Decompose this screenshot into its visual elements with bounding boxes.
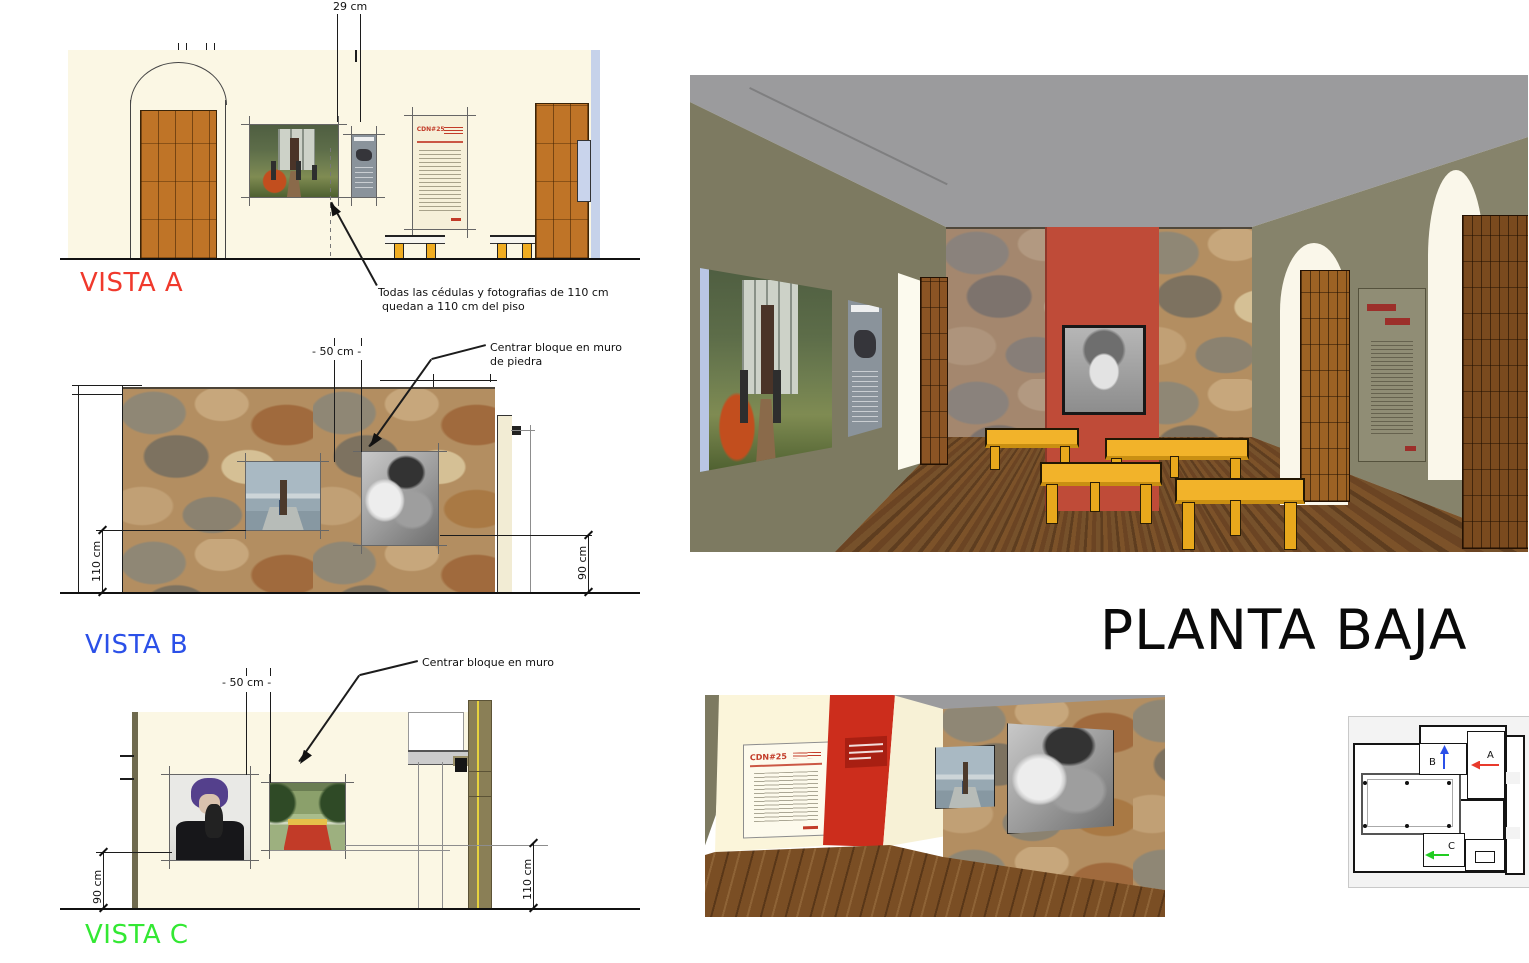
dimension-line: [361, 360, 362, 452]
plan-column-dot: [1447, 824, 1451, 828]
dimension-line: [337, 14, 338, 122]
plaque-text-line: [849, 757, 871, 760]
vista-c-dim-left: 90 cm: [91, 857, 104, 904]
guide-tick: [186, 43, 187, 50]
cdn-poster-title: CDN#25: [417, 126, 445, 133]
bench-table: [985, 428, 1079, 448]
plan-column-dot: [1405, 824, 1409, 828]
garden-photo: [250, 125, 338, 197]
jamb-seam: [469, 771, 491, 772]
dimension-line: [440, 535, 592, 536]
plan-door-gap: [1506, 827, 1520, 839]
guide-line: [418, 762, 419, 908]
plan-column-dot: [1363, 781, 1367, 785]
exhibit-title-panel: [1358, 288, 1426, 462]
bench-leg: [522, 243, 532, 259]
panel-text-lines: [355, 167, 373, 192]
photo-boat-rim: [288, 819, 327, 824]
lintel-line: [380, 380, 497, 381]
wall-line: [72, 385, 142, 386]
photo-figure: [740, 370, 748, 423]
bench-leg: [426, 243, 436, 259]
plan-column-dot: [1447, 781, 1451, 785]
guide-line: [270, 850, 450, 851]
wall-opening: [408, 712, 464, 752]
bench-leg: [1230, 500, 1241, 536]
door-jamb-column: [468, 700, 492, 910]
panel-title-line: [851, 305, 878, 312]
poster-subtitle-line: [417, 141, 463, 143]
guide-line: [345, 845, 548, 846]
quote-plaque: [845, 736, 887, 768]
plaque-text-line: [849, 743, 883, 747]
wall-line: [72, 394, 124, 395]
vista-c-note-line1: Centrar bloque en muro: [422, 656, 554, 669]
vista-b-elevation: - 50 cm - 110 cm 90 cm Centrar bloque en…: [60, 330, 645, 665]
pier-photo: [246, 462, 320, 530]
dimension-line: [96, 530, 246, 531]
plan-hall-inner: [1367, 779, 1453, 827]
vista-a-note-line1: Todas las cédulas y fotografias de 110 c…: [378, 286, 609, 299]
bench-leg: [394, 243, 404, 259]
jamb-seam: [469, 796, 491, 797]
poster-title-lines: [444, 127, 462, 134]
vista-b-note-line2: de piedra: [490, 355, 542, 368]
plan-column-dot: [1405, 781, 1409, 785]
guide-tick: [178, 43, 179, 50]
dimension-tick: [246, 668, 247, 676]
poster-body-text: [419, 150, 460, 211]
photo-figure: [963, 762, 968, 794]
vista-a-note-line2: quedan a 110 cm del piso: [382, 300, 525, 313]
wall-line: [78, 385, 79, 592]
plan-door-gap: [1506, 772, 1520, 784]
vista-c-label: VISTA C: [85, 920, 189, 950]
panel-map-shape: [854, 330, 876, 357]
floor-line: [60, 908, 640, 910]
presentation-page: 29 cm CDN#25 Todas la: [0, 0, 1529, 963]
lintel-tick: [433, 374, 434, 387]
guide-tick: [120, 778, 134, 780]
panel-title-line: [354, 137, 373, 140]
vista-b-dim-left: 110 cm: [90, 530, 103, 582]
view-a-arrow: [1477, 764, 1499, 766]
canal-boat-photo: [270, 783, 345, 850]
panel-map-shape: [356, 149, 371, 161]
cdn-poster: CDN#25: [412, 115, 468, 230]
dimension-tick: [270, 668, 271, 676]
plan-fixture: [1475, 851, 1495, 863]
photo-figure: [271, 161, 276, 180]
wall-bracket: [455, 758, 467, 772]
leader-line: [431, 345, 486, 360]
dimension-line: [246, 692, 247, 775]
plan-room-a-label: A: [1487, 750, 1494, 761]
vista-a-label: VISTA A: [80, 268, 183, 298]
leader-line: [359, 661, 418, 677]
conch-photo-render: [1007, 720, 1114, 834]
vista-c-dim-top: - 50 cm -: [222, 676, 271, 689]
photo-edge: [700, 268, 709, 472]
plan-right-wing: [1505, 735, 1525, 875]
vista-b-dim-top: - 50 cm -: [312, 345, 361, 358]
dimension-line: [334, 360, 335, 462]
photo-cat: [205, 804, 223, 838]
bench-leg: [1182, 502, 1195, 550]
photo-figure: [773, 370, 781, 423]
photo-figure: [312, 165, 317, 179]
guide-tick: [120, 755, 134, 757]
red-column: [823, 695, 895, 847]
vista-a-dim-top: 29 cm: [333, 0, 367, 13]
cdn-poster-title: CDN#25: [750, 752, 787, 762]
door-window: [577, 140, 591, 202]
bench-leg: [1090, 482, 1100, 512]
cdn-poster-render: CDN#25: [743, 741, 829, 838]
floor-line: [60, 592, 640, 594]
bench-leg: [990, 446, 1000, 470]
panel-title-mark: [1367, 304, 1396, 311]
poster-title-lines: [793, 752, 822, 759]
poster-body-text: [754, 770, 818, 822]
jamb-highlight: [477, 701, 479, 909]
dimension-tick: [355, 50, 357, 62]
dimension-line: [96, 852, 172, 853]
photo-figure: [280, 480, 287, 515]
guide-line: [442, 762, 443, 908]
poster-subtitle-line: [750, 763, 822, 768]
photo-boat-bow: [284, 822, 332, 850]
panel-title-mark: [1385, 318, 1410, 325]
bench-leg: [1140, 484, 1152, 524]
floor-plan-thumbnail: B A C: [1348, 716, 1529, 888]
vista-c-dim-right: 110 cm: [521, 847, 534, 900]
pier-photo-render: [935, 745, 995, 809]
door-frame-line: [225, 100, 226, 258]
guide-tick: [206, 43, 207, 50]
panel-body-text: [1371, 341, 1413, 436]
door-frame-line: [130, 100, 131, 258]
wooden-door-left: [140, 110, 217, 259]
bench-leg: [497, 243, 507, 259]
door-far-right: [1462, 215, 1528, 549]
plan-room-b-label: B: [1429, 757, 1436, 768]
vista-b-note-line1: Centrar bloque en muro: [490, 341, 622, 354]
poster-signature: [451, 218, 461, 221]
conch-photo: [362, 452, 438, 545]
floor-line: [60, 258, 640, 260]
gallery-render-main: [690, 75, 1528, 552]
map-panel: [352, 135, 376, 197]
bench-leg: [1170, 456, 1179, 478]
dimension-line: [360, 14, 361, 122]
guide-line: [530, 425, 531, 592]
guide-tick: [214, 43, 215, 50]
gallery-render-secondary: CDN#25: [705, 695, 1165, 917]
door-left-wall: [920, 277, 948, 465]
vista-c-elevation: - 50 cm - 90 cm 110 cm Centrar bloque: [60, 650, 645, 963]
vista-a-wall-edge-strip: [591, 50, 600, 258]
plan-room-c-label: C: [1448, 841, 1455, 852]
panel-signature: [1405, 446, 1416, 450]
side-panel: [497, 415, 512, 593]
plan-room-c: [1423, 833, 1465, 867]
lintel-tick: [490, 374, 491, 382]
vista-a-elevation: 29 cm CDN#25 Todas la: [60, 0, 645, 330]
bench-leg: [1046, 484, 1058, 524]
map-panel-render: [848, 300, 882, 437]
garden-photo-large: [700, 268, 832, 472]
bench-leg: [1284, 502, 1297, 550]
arch-door-1: [1300, 270, 1350, 502]
bench-table: [1040, 462, 1162, 486]
cat-person-photo: [170, 775, 250, 860]
wall-edge-strip: [132, 712, 138, 908]
page-title: PLANTA BAJA: [1100, 598, 1468, 662]
poster-signature: [803, 826, 818, 829]
vista-b-dim-right: 90 cm: [576, 535, 589, 580]
photo-figure: [296, 161, 301, 180]
guide-line: [511, 430, 535, 431]
dimension-line: [270, 692, 271, 783]
plaque-text-line: [849, 750, 883, 754]
girl-photo: [1062, 325, 1146, 415]
plan-column-dot: [1363, 824, 1367, 828]
panel-text-lines: [852, 371, 878, 426]
